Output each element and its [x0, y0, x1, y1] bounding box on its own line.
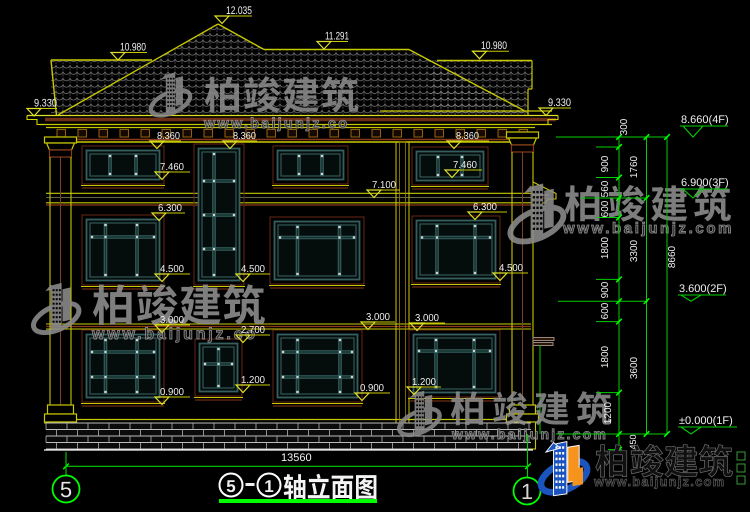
svg-text:300: 300	[619, 118, 630, 135]
svg-text:9.330: 9.330	[34, 98, 57, 110]
svg-text:3600: 3600	[629, 356, 640, 379]
svg-text:3.000: 3.000	[415, 313, 439, 324]
svg-text:3300: 3300	[629, 239, 640, 262]
svg-text:www.baijunjz.co: www.baijunjz.co	[203, 116, 349, 132]
svg-text:1800: 1800	[600, 345, 611, 368]
svg-text:0.900: 0.900	[360, 383, 384, 394]
svg-text:1: 1	[521, 479, 533, 504]
svg-text:600: 600	[600, 302, 611, 319]
svg-text:900: 900	[600, 281, 611, 298]
svg-text:www.baijunjz.com: www.baijunjz.com	[562, 220, 734, 237]
svg-text:7.460: 7.460	[160, 162, 184, 173]
svg-text:4.500: 4.500	[499, 263, 523, 274]
svg-text:7.460: 7.460	[453, 160, 477, 171]
svg-text:4.500: 4.500	[241, 264, 265, 275]
svg-text:6.300: 6.300	[158, 203, 182, 214]
svg-text:1200: 1200	[603, 401, 614, 424]
svg-text:0.900: 0.900	[160, 387, 184, 398]
svg-text:3.000: 3.000	[366, 312, 390, 323]
svg-text:1.200: 1.200	[241, 375, 265, 386]
svg-text:5: 5	[226, 477, 235, 496]
svg-text:1800: 1800	[600, 236, 611, 259]
svg-text:1.200: 1.200	[412, 377, 436, 388]
svg-text:6.300: 6.300	[473, 202, 497, 213]
svg-text:10.980: 10.980	[120, 42, 146, 54]
svg-text:6.900(3F): 6.900(3F)	[681, 177, 729, 189]
svg-text:600: 600	[600, 200, 611, 217]
svg-text:10.980: 10.980	[481, 40, 507, 52]
svg-text:8.660(4F): 8.660(4F)	[681, 114, 729, 126]
svg-text:3.000: 3.000	[160, 315, 184, 326]
svg-text:7.100: 7.100	[372, 180, 396, 191]
svg-text:560: 560	[600, 180, 611, 197]
svg-text:±0.000(1F): ±0.000(1F)	[679, 415, 733, 427]
svg-text:8.360: 8.360	[157, 131, 180, 142]
svg-text:www.baijunjz.co: www.baijunjz.co	[91, 326, 258, 343]
svg-text:1760: 1760	[629, 155, 640, 178]
svg-text:12.035: 12.035	[226, 5, 252, 17]
svg-text:4.500: 4.500	[160, 264, 184, 275]
svg-text:2.700: 2.700	[241, 325, 265, 336]
svg-text:5: 5	[60, 477, 72, 502]
svg-text:11.291: 11.291	[325, 31, 349, 43]
svg-text:8.360: 8.360	[233, 131, 256, 142]
svg-text:8.360: 8.360	[456, 131, 479, 142]
svg-text:9.330: 9.330	[548, 97, 571, 109]
svg-text:1: 1	[264, 477, 273, 496]
svg-text:900: 900	[600, 155, 611, 172]
svg-text:www.baijunjz.com: www.baijunjz.com	[593, 474, 725, 489]
svg-text:13560: 13560	[281, 452, 312, 464]
svg-text:8660: 8660	[667, 245, 678, 268]
svg-text:3.600(2F): 3.600(2F)	[679, 283, 727, 295]
